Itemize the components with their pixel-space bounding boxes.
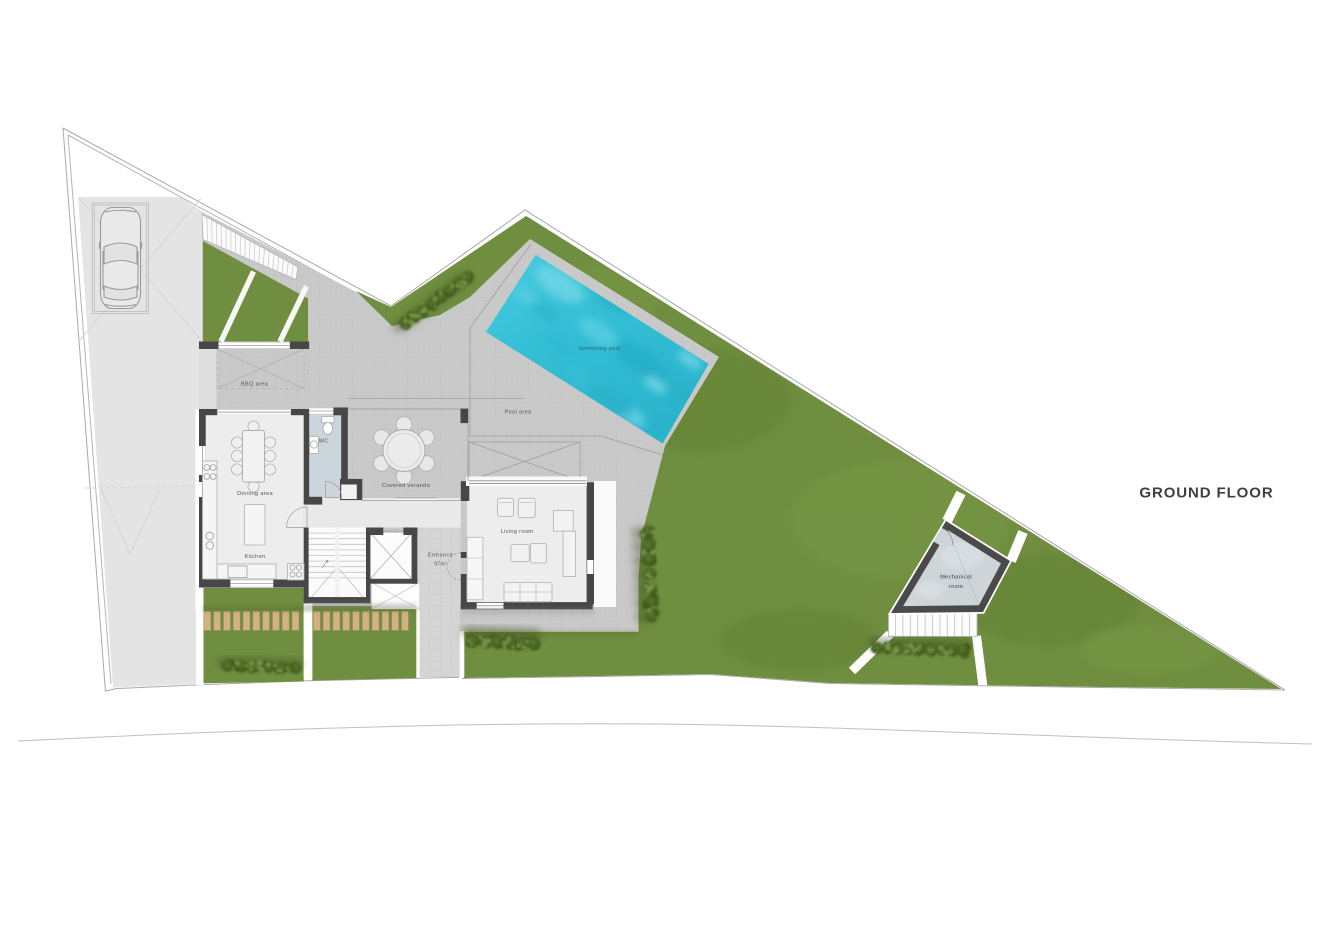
svg-text:Entrance: Entrance	[428, 553, 453, 559]
svg-text:Mechanical: Mechanical	[940, 575, 972, 581]
svg-text:WC: WC	[319, 439, 329, 445]
svg-text:room: room	[949, 584, 963, 590]
svg-text:Covered veranda: Covered veranda	[382, 483, 431, 489]
svg-text:GROUND FLOOR: GROUND FLOOR	[1139, 485, 1273, 502]
svg-text:97m²: 97m²	[434, 562, 447, 568]
svg-text:Living room: Living room	[501, 529, 534, 535]
svg-text:Pool area: Pool area	[504, 410, 532, 416]
svg-text:Kitchen: Kitchen	[244, 554, 265, 560]
svg-text:Dinning area: Dinning area	[237, 491, 273, 497]
svg-text:BBQ area: BBQ area	[241, 382, 269, 388]
svg-text:Swimming pool: Swimming pool	[578, 346, 620, 352]
